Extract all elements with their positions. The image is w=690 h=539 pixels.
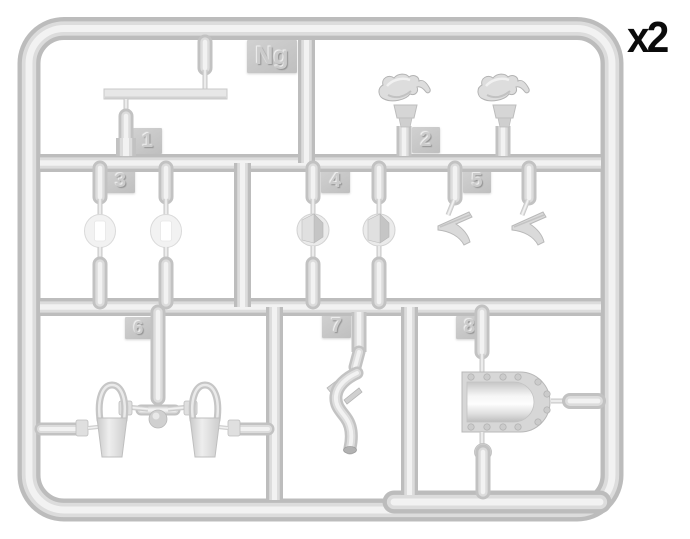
sprue-joint-block (228, 420, 240, 436)
sprue-diagram: Ng 1 2 3 4 5 6 7 8 (0, 0, 690, 539)
part-5-column (438, 168, 472, 245)
part-2-neck (399, 118, 412, 127)
part-3-column (151, 168, 182, 302)
cell-part-6 (41, 312, 268, 457)
part-2-collar (394, 105, 417, 118)
part-2-collar (493, 105, 516, 118)
part-6-shackle (97, 385, 127, 457)
part-2-hook (478, 74, 529, 156)
part-8-cover-dome (467, 382, 534, 422)
part-4-column (297, 168, 329, 302)
sprue-joint-block (76, 420, 88, 436)
part-6-loop-base (190, 418, 220, 457)
part-2-hook (379, 74, 430, 156)
cell-part-3 (85, 168, 182, 302)
part-3-column (85, 168, 116, 302)
part-6-loop-base (97, 418, 127, 457)
part-6-shackle (190, 385, 220, 457)
cell-part-4 (297, 168, 395, 302)
quantity-label: x2 (627, 13, 682, 63)
part-3-disc-slot (161, 221, 172, 241)
sprue-junction-ball (149, 410, 167, 428)
part-3-disc-slot (95, 221, 106, 241)
part-7-bracket (344, 388, 362, 404)
cell-part-2 (379, 74, 529, 156)
cell-part-8 (462, 312, 598, 492)
cell-part-1 (104, 42, 227, 156)
part-2-neck (498, 118, 511, 127)
part-7-pipe-opening (344, 447, 357, 454)
part-5-column (512, 168, 546, 245)
cell-part-7 (327, 312, 362, 454)
sprue-artwork (0, 0, 690, 539)
part-4-column (363, 168, 395, 302)
cell-part-5 (438, 168, 546, 245)
sprue-junction-ball-highlight (153, 413, 160, 420)
